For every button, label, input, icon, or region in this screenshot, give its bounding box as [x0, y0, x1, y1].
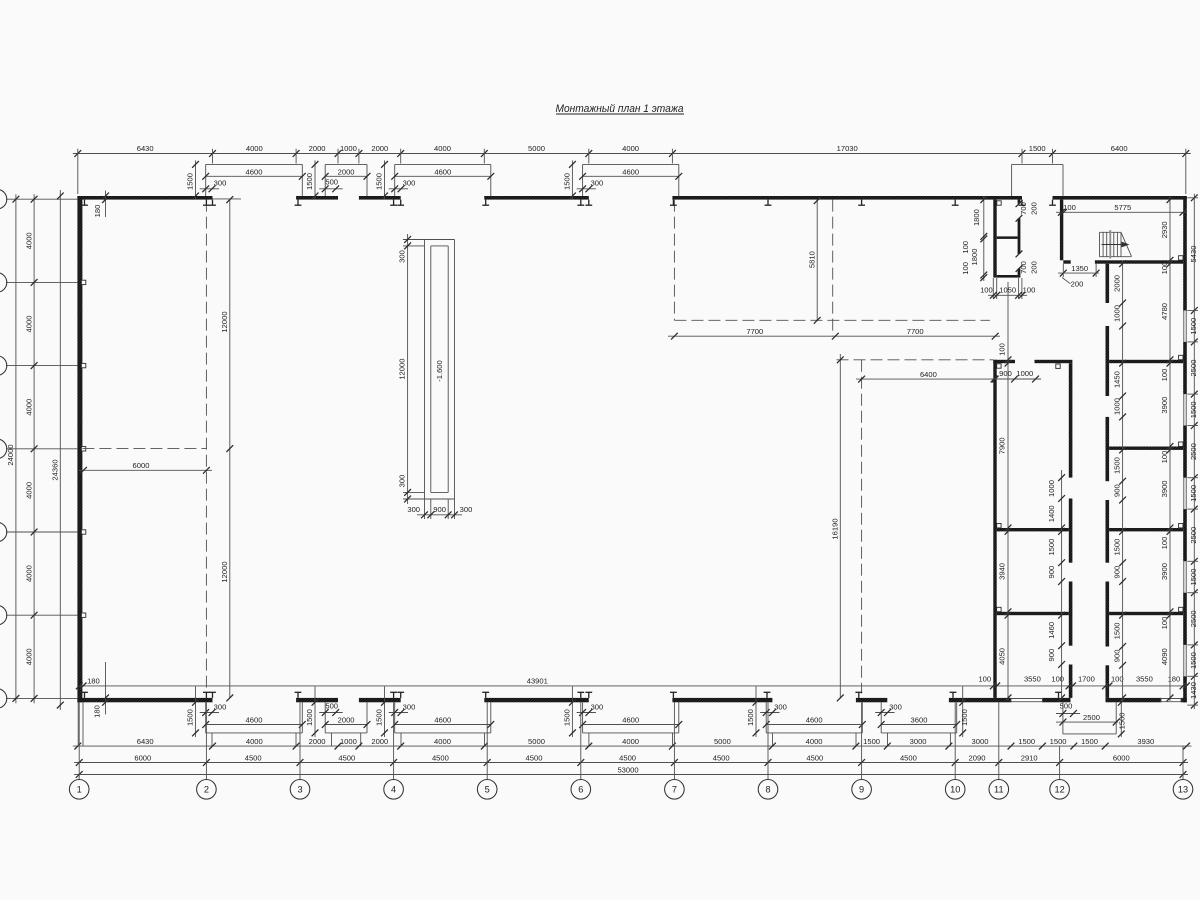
svg-text:6430: 6430: [137, 737, 154, 746]
svg-text:1500: 1500: [1113, 539, 1122, 556]
svg-text:100: 100: [1160, 617, 1169, 630]
svg-text:1050: 1050: [999, 286, 1016, 295]
svg-text:180: 180: [1168, 675, 1181, 684]
svg-text:3000: 3000: [910, 737, 927, 746]
svg-text:16190: 16190: [831, 518, 840, 539]
svg-text:-1.600: -1.600: [435, 360, 444, 382]
svg-text:2500: 2500: [1083, 713, 1100, 722]
svg-text:3550: 3550: [1024, 675, 1041, 684]
svg-text:4000: 4000: [434, 144, 451, 153]
svg-text:1: 1: [77, 785, 82, 795]
svg-text:500: 500: [1060, 702, 1073, 711]
svg-text:100: 100: [961, 241, 970, 254]
svg-text:4500: 4500: [713, 753, 730, 762]
svg-text:4000: 4000: [622, 737, 639, 746]
svg-text:900: 900: [1047, 566, 1056, 579]
svg-text:1500: 1500: [1047, 539, 1056, 556]
svg-text:2000: 2000: [309, 144, 326, 153]
svg-text:43901: 43901: [527, 677, 548, 686]
svg-text:4000: 4000: [806, 737, 823, 746]
svg-text:100: 100: [1111, 675, 1124, 684]
svg-text:5000: 5000: [528, 737, 545, 746]
svg-text:1000: 1000: [1113, 305, 1122, 322]
svg-text:1500: 1500: [1189, 485, 1198, 502]
svg-text:7700: 7700: [907, 327, 924, 336]
svg-text:900: 900: [999, 369, 1012, 378]
svg-text:1500: 1500: [562, 709, 571, 726]
svg-text:1500: 1500: [562, 173, 571, 190]
svg-text:2: 2: [204, 785, 209, 795]
svg-text:1450: 1450: [1113, 371, 1122, 388]
svg-text:24360: 24360: [51, 459, 60, 480]
svg-text:100: 100: [978, 675, 991, 684]
svg-text:100: 100: [1051, 675, 1064, 684]
svg-text:500: 500: [325, 178, 338, 187]
svg-text:4600: 4600: [246, 716, 263, 725]
svg-text:2000: 2000: [371, 144, 388, 153]
svg-text:1500: 1500: [960, 709, 969, 726]
svg-text:4000: 4000: [246, 737, 263, 746]
svg-text:1500: 1500: [186, 173, 195, 190]
svg-text:4000: 4000: [24, 316, 33, 333]
svg-text:300: 300: [407, 505, 420, 514]
svg-text:4000: 4000: [434, 737, 451, 746]
svg-text:4000: 4000: [622, 144, 639, 153]
svg-text:100: 100: [1063, 203, 1076, 212]
svg-text:4000: 4000: [24, 648, 33, 665]
svg-text:4500: 4500: [619, 753, 636, 762]
svg-text:12000: 12000: [398, 359, 407, 380]
svg-text:1500: 1500: [305, 173, 314, 190]
svg-text:7900: 7900: [997, 437, 1006, 454]
svg-text:3900: 3900: [1160, 397, 1169, 414]
svg-text:4: 4: [391, 785, 396, 795]
svg-text:1000: 1000: [1113, 398, 1122, 415]
svg-text:4600: 4600: [806, 716, 823, 725]
svg-text:100: 100: [1160, 537, 1169, 550]
svg-text:1800: 1800: [972, 209, 981, 226]
svg-text:200: 200: [1030, 261, 1039, 274]
svg-text:12000: 12000: [220, 561, 229, 582]
svg-text:300: 300: [774, 703, 787, 712]
svg-text:100: 100: [1160, 369, 1169, 382]
svg-text:200: 200: [1071, 279, 1084, 288]
svg-text:2500: 2500: [1189, 610, 1198, 627]
svg-text:100: 100: [980, 286, 993, 295]
svg-text:2090: 2090: [969, 753, 986, 762]
svg-text:10: 10: [950, 785, 960, 795]
svg-text:1000: 1000: [1047, 480, 1056, 497]
svg-text:100: 100: [961, 262, 970, 275]
svg-text:900: 900: [1113, 650, 1122, 663]
svg-text:1500: 1500: [1189, 569, 1198, 586]
svg-text:4500: 4500: [526, 753, 543, 762]
svg-text:180: 180: [87, 677, 100, 686]
svg-text:4500: 4500: [338, 753, 355, 762]
svg-text:5000: 5000: [528, 144, 545, 153]
svg-text:300: 300: [889, 703, 902, 712]
svg-text:1000: 1000: [1016, 369, 1033, 378]
svg-text:6000: 6000: [1113, 753, 1130, 762]
svg-text:900: 900: [433, 505, 446, 514]
svg-text:5775: 5775: [1114, 203, 1131, 212]
svg-text:1700: 1700: [1078, 675, 1095, 684]
svg-text:100: 100: [1160, 451, 1169, 464]
svg-text:1500: 1500: [1189, 652, 1198, 669]
svg-text:5: 5: [485, 785, 490, 795]
svg-text:1000: 1000: [340, 144, 357, 153]
svg-text:4000: 4000: [246, 144, 263, 153]
svg-text:1460: 1460: [1047, 622, 1056, 639]
svg-text:300: 300: [214, 179, 227, 188]
svg-text:1800: 1800: [970, 249, 979, 266]
svg-text:4000: 4000: [24, 565, 33, 582]
svg-text:300: 300: [398, 475, 407, 488]
svg-text:2500: 2500: [1189, 443, 1198, 460]
svg-text:7: 7: [672, 785, 677, 795]
svg-text:4500: 4500: [432, 753, 449, 762]
svg-text:5430: 5430: [1189, 246, 1198, 263]
svg-text:4000: 4000: [24, 399, 33, 416]
svg-text:6400: 6400: [1111, 144, 1128, 153]
svg-text:3940: 3940: [997, 563, 1006, 580]
svg-text:8: 8: [765, 785, 770, 795]
svg-text:4500: 4500: [900, 753, 917, 762]
svg-text:12000: 12000: [220, 311, 229, 332]
svg-text:11: 11: [994, 785, 1004, 795]
svg-text:12: 12: [1054, 785, 1064, 795]
svg-text:1500: 1500: [863, 737, 880, 746]
svg-text:5810: 5810: [807, 251, 816, 268]
svg-text:500: 500: [325, 702, 338, 711]
svg-text:3600: 3600: [911, 716, 928, 725]
svg-text:7700: 7700: [746, 327, 763, 336]
svg-text:3: 3: [297, 785, 302, 795]
svg-text:2930: 2930: [1160, 221, 1169, 238]
svg-text:5000: 5000: [714, 737, 731, 746]
svg-text:4050: 4050: [997, 648, 1006, 665]
svg-text:1500: 1500: [1118, 712, 1127, 729]
svg-text:2500: 2500: [1189, 360, 1198, 377]
svg-text:300: 300: [403, 179, 416, 188]
svg-text:700: 700: [1019, 202, 1028, 215]
svg-text:300: 300: [460, 505, 473, 514]
svg-text:2000: 2000: [1113, 275, 1122, 292]
svg-text:2000: 2000: [338, 716, 355, 725]
svg-text:300: 300: [591, 179, 604, 188]
svg-text:1500: 1500: [1113, 622, 1122, 639]
svg-text:180: 180: [93, 705, 102, 718]
svg-text:6400: 6400: [920, 370, 937, 379]
svg-text:100: 100: [1160, 262, 1169, 275]
svg-text:1500: 1500: [746, 709, 755, 726]
svg-text:1500: 1500: [1189, 318, 1198, 335]
svg-text:1500: 1500: [1050, 737, 1067, 746]
svg-text:2000: 2000: [309, 737, 326, 746]
svg-text:1500: 1500: [1029, 144, 1046, 153]
svg-text:1500: 1500: [1018, 737, 1035, 746]
svg-text:300: 300: [398, 250, 407, 263]
svg-text:3930: 3930: [1137, 737, 1154, 746]
svg-text:4600: 4600: [434, 167, 451, 176]
svg-text:4500: 4500: [806, 753, 823, 762]
svg-text:1500: 1500: [1113, 457, 1122, 474]
svg-text:6430: 6430: [137, 144, 154, 153]
svg-text:4090: 4090: [1160, 648, 1169, 665]
svg-text:3550: 3550: [1136, 675, 1153, 684]
svg-text:4500: 4500: [245, 753, 262, 762]
svg-text:4600: 4600: [622, 716, 639, 725]
svg-text:6: 6: [578, 785, 583, 795]
svg-text:900: 900: [1113, 566, 1122, 579]
svg-text:2910: 2910: [1021, 753, 1038, 762]
svg-text:900: 900: [1047, 649, 1056, 662]
svg-text:53000: 53000: [617, 765, 638, 774]
svg-text:4600: 4600: [622, 167, 639, 176]
svg-text:4780: 4780: [1160, 303, 1169, 320]
svg-text:200: 200: [1030, 202, 1039, 215]
svg-text:1430: 1430: [1189, 682, 1198, 699]
svg-text:4000: 4000: [24, 482, 33, 499]
svg-text:2000: 2000: [338, 167, 355, 176]
svg-text:1500: 1500: [1081, 737, 1098, 746]
svg-text:300: 300: [403, 703, 416, 712]
svg-text:180: 180: [93, 205, 102, 218]
svg-text:6000: 6000: [133, 461, 150, 470]
svg-text:900: 900: [1113, 484, 1122, 497]
svg-text:6000: 6000: [134, 753, 151, 762]
svg-text:1000: 1000: [340, 737, 357, 746]
svg-text:1400: 1400: [1047, 505, 1056, 522]
svg-text:24000: 24000: [6, 444, 15, 465]
svg-text:3000: 3000: [972, 737, 989, 746]
svg-text:17030: 17030: [837, 144, 858, 153]
svg-text:1500: 1500: [1189, 401, 1198, 418]
svg-text:300: 300: [214, 703, 227, 712]
svg-text:100: 100: [997, 343, 1006, 356]
svg-text:3900: 3900: [1160, 563, 1169, 580]
svg-text:3900: 3900: [1160, 480, 1169, 497]
svg-text:4000: 4000: [24, 232, 33, 249]
svg-text:13: 13: [1178, 785, 1188, 795]
svg-text:4600: 4600: [246, 167, 263, 176]
svg-text:1500: 1500: [186, 709, 195, 726]
svg-text:1500: 1500: [375, 173, 384, 190]
svg-text:2000: 2000: [371, 737, 388, 746]
svg-text:1350: 1350: [1071, 264, 1088, 273]
svg-text:100: 100: [1023, 286, 1036, 295]
svg-text:2500: 2500: [1189, 527, 1198, 544]
svg-text:9: 9: [859, 785, 864, 795]
svg-text:1500: 1500: [375, 709, 384, 726]
svg-text:300: 300: [591, 703, 604, 712]
svg-text:Монтажный план 1 этажа: Монтажный план 1 этажа: [556, 103, 684, 115]
svg-text:1500: 1500: [305, 709, 314, 726]
svg-text:4600: 4600: [434, 716, 451, 725]
